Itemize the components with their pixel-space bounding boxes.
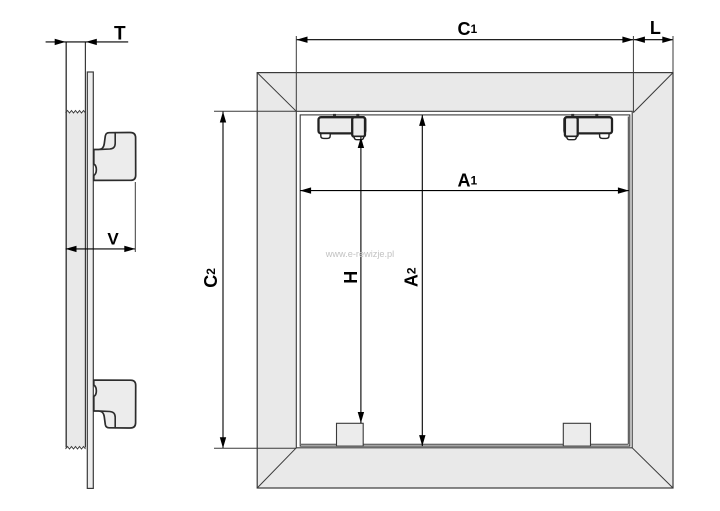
svg-text:V: V — [107, 230, 119, 249]
svg-text:www.e-rewizje.pl: www.e-rewizje.pl — [325, 249, 394, 259]
svg-text:H: H — [341, 271, 361, 284]
svg-text:T: T — [114, 24, 126, 45]
svg-text:L: L — [650, 18, 661, 38]
